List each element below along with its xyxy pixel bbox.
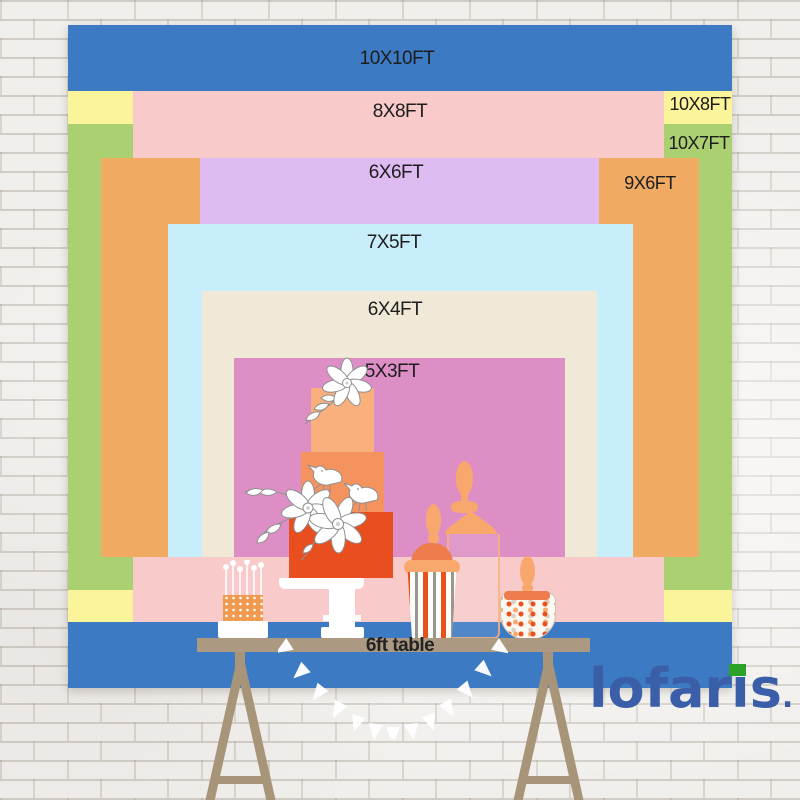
- mini-cake-base: [218, 621, 268, 638]
- label-10x10ft: 10X10FT: [360, 48, 435, 70]
- jar-finial: [456, 461, 473, 496]
- label-6x4ft: 6X4FT: [368, 299, 423, 321]
- flowers-and-birds-icon: [225, 348, 405, 563]
- lofaris-logo: lofaris.: [589, 661, 794, 723]
- product-image-brick-wall: 10X10FT 8X8FT 10X8FT 10X7FT 6X6FT 9X6FT …: [0, 0, 800, 800]
- label-6ft-table: 6ft table: [366, 635, 434, 657]
- logo-dot: .: [782, 680, 793, 715]
- label-10x8ft: 10X8FT: [669, 94, 730, 115]
- logo-text-part1: lofar: [589, 657, 731, 720]
- label-9x6ft: 9X6FT: [624, 173, 676, 194]
- logo-letter-i-with-green-flag: i: [731, 657, 750, 720]
- label-7x5ft: 7X5FT: [367, 232, 422, 254]
- birthday-candles-icon: [220, 560, 266, 598]
- cake-stand-plate: [279, 578, 364, 589]
- label-6x6ft: 6X6FT: [369, 162, 424, 184]
- striped-cup-body: [405, 572, 459, 638]
- label-8x8ft: 8X8FT: [373, 101, 428, 123]
- logo-text-part3: s: [750, 657, 782, 720]
- mini-cake-body: [223, 595, 263, 621]
- label-10x7ft: 10X7FT: [668, 133, 729, 154]
- candy-bowl-rim: [504, 591, 550, 600]
